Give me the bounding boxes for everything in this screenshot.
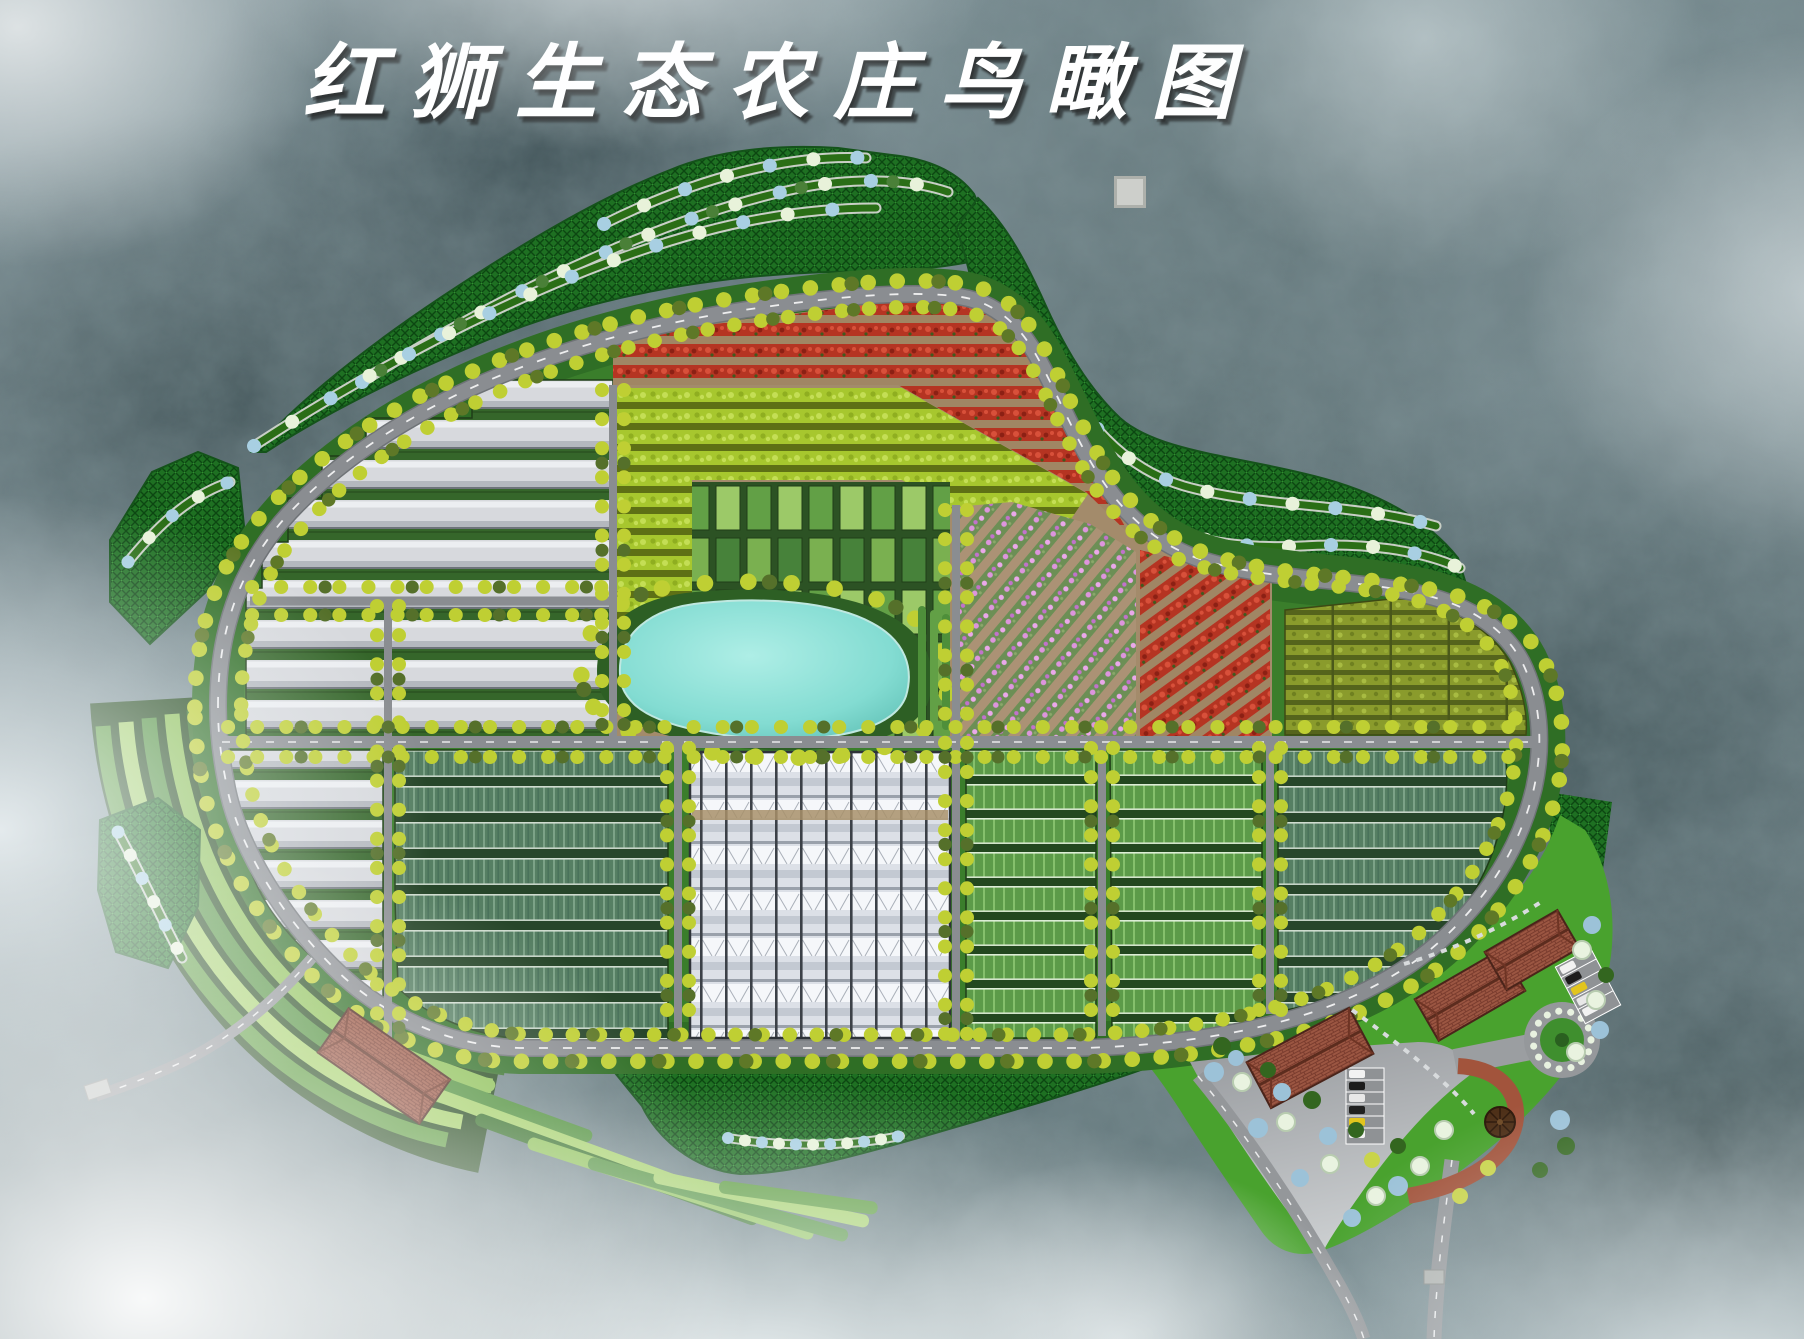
page-title: 红狮生态农庄鸟瞰图: [0, 16, 1560, 135]
gazebo: [1485, 1107, 1515, 1137]
pond: [620, 600, 909, 739]
greenhouse-strip-field-south-b: [1110, 750, 1262, 1040]
site-plan-map: [0, 0, 1804, 1339]
birdseye-rendering: 红狮生态农庄鸟瞰图: [0, 0, 1804, 1339]
glass-greenhouse-complex: [690, 752, 950, 1038]
pink-flower-field: [955, 502, 1136, 736]
shade-net-greenhouse-field-southwest: [395, 750, 668, 1040]
greenhouse-strip-field-south-a: [966, 750, 1096, 1038]
stray-gray-square: [1114, 176, 1146, 208]
entrance-gate: [1424, 1270, 1444, 1284]
